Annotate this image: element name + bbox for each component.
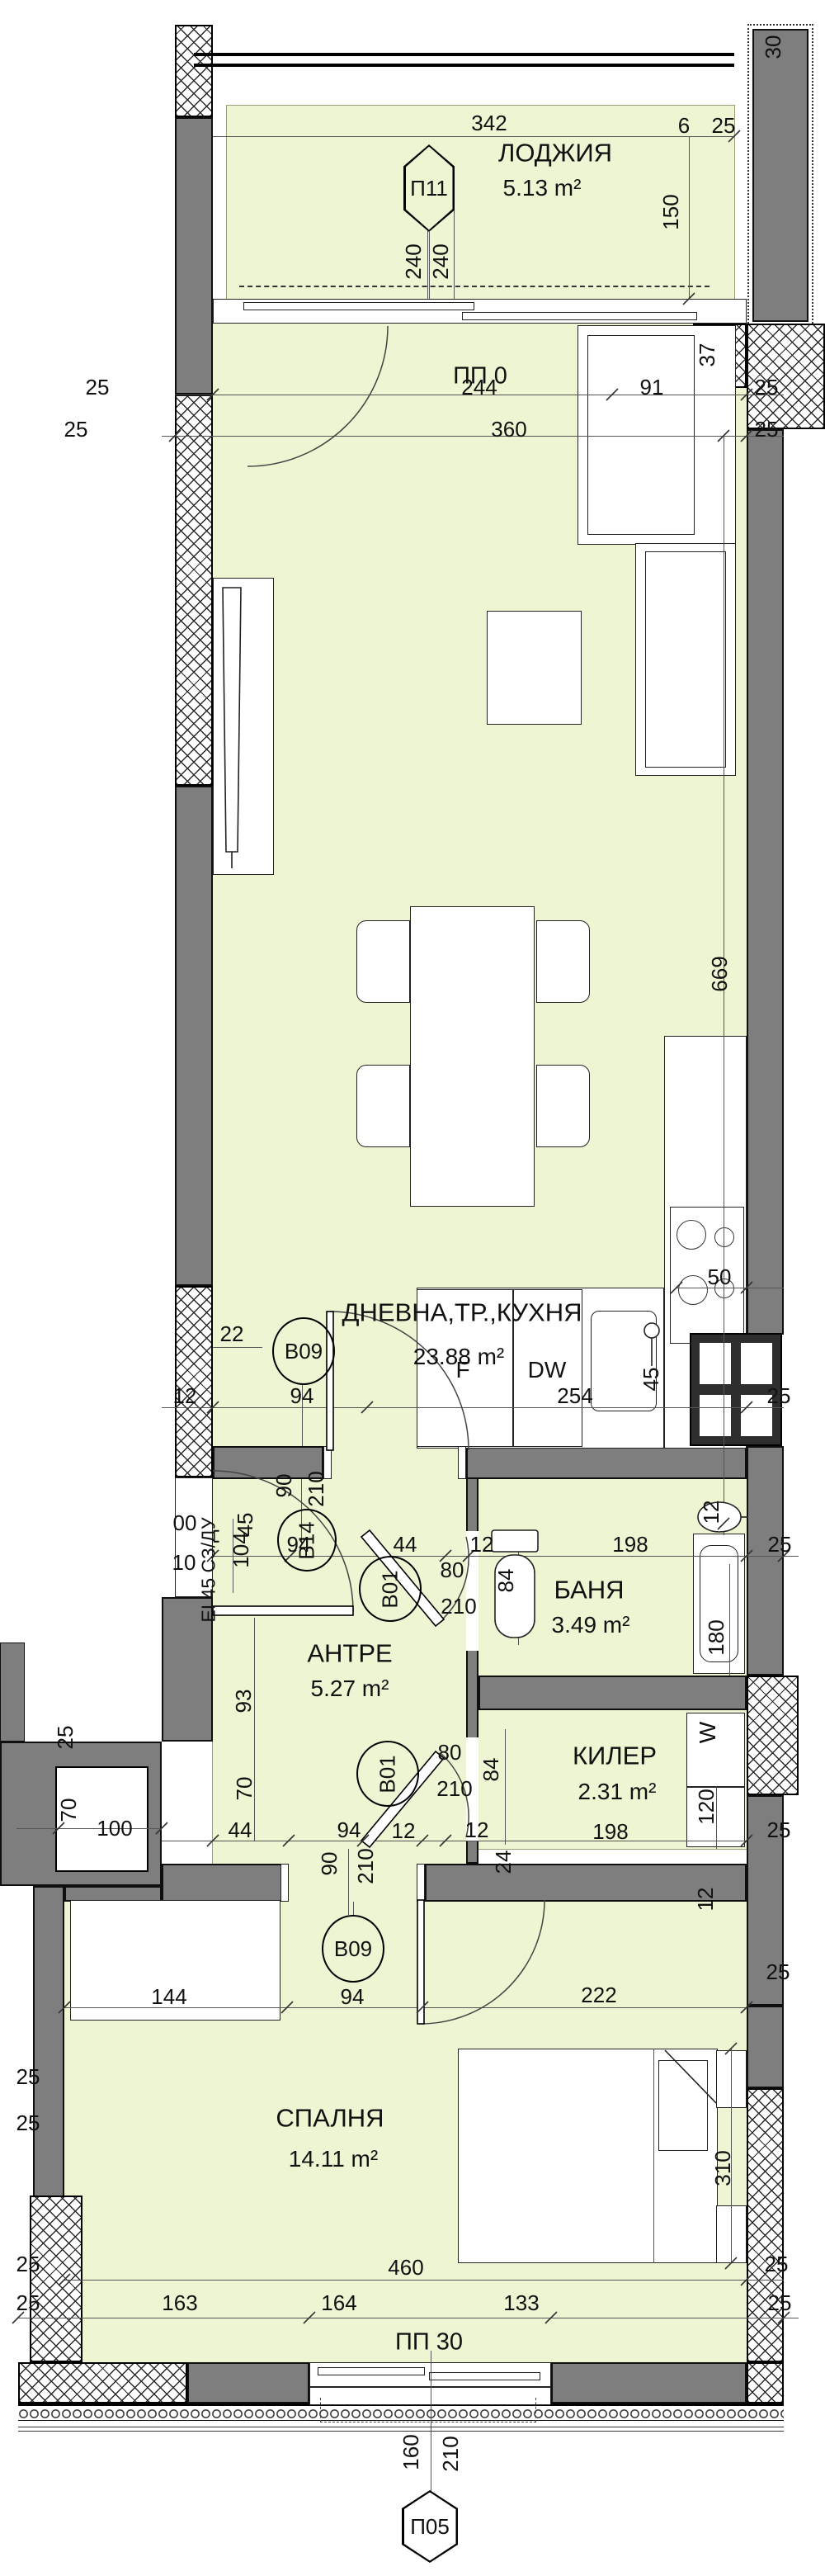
dim-label: 12 xyxy=(173,1385,197,1406)
dim-label: 144 xyxy=(151,1986,186,2007)
dim-label: 90 xyxy=(273,1474,295,1498)
door-arc xyxy=(421,1900,544,2024)
door-tag-В01: В01 xyxy=(359,1556,422,1622)
area-label: 3.49 m² xyxy=(552,1614,630,1637)
dim-label: 240 xyxy=(430,243,451,279)
dim-label: 210 xyxy=(440,2436,461,2471)
dim-label: 45 xyxy=(640,1368,662,1392)
dim-label: 210 xyxy=(305,1471,327,1506)
dim-label: 94 xyxy=(337,1819,361,1841)
dim-label: 44 xyxy=(229,1819,252,1841)
dim-label: 25 xyxy=(16,2292,40,2314)
tag-text: В09 xyxy=(285,1339,323,1364)
dim-label: 210 xyxy=(355,1848,376,1884)
dim-label: 25 xyxy=(54,1726,76,1750)
dim-label: 24 xyxy=(493,1850,514,1874)
area-label: 5.13 m² xyxy=(503,177,582,200)
door-tag-В14: В14 xyxy=(277,1509,337,1572)
dim-label: 84 xyxy=(480,1758,502,1782)
tv xyxy=(223,588,241,852)
dim-label: 94 xyxy=(290,1385,314,1406)
appl-label: F xyxy=(455,1359,469,1382)
tick xyxy=(12,130,790,2323)
tag-text: В14 xyxy=(294,1521,319,1559)
dim-label: 164 xyxy=(321,2292,356,2314)
dim-label: 25 xyxy=(755,376,779,398)
dim-label: 25 xyxy=(767,1385,791,1406)
door-arc xyxy=(330,1312,469,1450)
door-leaf xyxy=(213,1606,353,1615)
dim-label: 84 xyxy=(495,1569,516,1593)
dim-label: 25 xyxy=(16,2112,40,2134)
dim-label: 25 xyxy=(768,2292,792,2314)
dim-label: 360 xyxy=(491,418,526,440)
dim-label: 30 xyxy=(762,35,784,59)
dim-label: 210 xyxy=(436,1778,472,1799)
area-label: 14.11 m² xyxy=(289,2148,378,2171)
door-tag-В01: В01 xyxy=(356,1741,419,1807)
dim-label: 12 xyxy=(392,1820,416,1841)
dim-label: 180 xyxy=(705,1619,727,1655)
dim-label: 25 xyxy=(766,1961,790,1983)
dim-label: 12 xyxy=(695,1888,716,1912)
area-label: 5.27 m² xyxy=(311,1677,389,1700)
dim-label: 50 xyxy=(708,1266,732,1288)
dim-label: 12 xyxy=(470,1534,494,1555)
dim-label: 120 xyxy=(695,1789,717,1824)
dim-label: 150 xyxy=(660,194,681,229)
room-label: АНТРЕ xyxy=(307,1641,392,1666)
appl-label: DW xyxy=(528,1359,567,1382)
dim-label: 222 xyxy=(581,1984,616,2006)
dim-label: 100 xyxy=(97,1817,132,1839)
faucet xyxy=(644,1323,659,1338)
room-label: ЛОДЖИЯ xyxy=(498,140,612,166)
hexagon-tag-П11: П11 xyxy=(403,144,455,232)
dim-label: 70 xyxy=(233,1777,255,1801)
toilet-tank xyxy=(492,1530,538,1552)
dim-label: 91 xyxy=(640,376,664,398)
door-tag-В09: В09 xyxy=(322,1915,384,1983)
dim-label: 12 xyxy=(465,1819,489,1841)
tag-text: П05 xyxy=(410,2514,450,2540)
area-label: 2.31 m² xyxy=(578,1780,657,1803)
dim-label: 25 xyxy=(767,1819,791,1841)
dim-label: 80 xyxy=(441,1559,464,1581)
plan-symbols xyxy=(0,0,825,2576)
dim-label: 37 xyxy=(696,343,718,367)
bed-fold xyxy=(665,2050,716,2103)
tag-text: В09 xyxy=(334,1936,372,1962)
room-label: СПАЛНЯ xyxy=(276,2106,384,2131)
dim-label: EI 45 СЗ/ДУ xyxy=(200,1517,219,1622)
door-leaf xyxy=(417,1900,424,2024)
dim-label: 460 xyxy=(388,2257,423,2278)
dim-label: 133 xyxy=(503,2292,539,2314)
dim-label: 94 xyxy=(341,1986,365,2007)
tag-text: В01 xyxy=(375,1755,400,1793)
dim-label: 163 xyxy=(162,2292,197,2314)
dim-label: 244 xyxy=(461,376,497,398)
dim-label: 104 xyxy=(230,1532,252,1567)
tag-label: ПП 30 xyxy=(395,2331,463,2355)
dim-label: 25 xyxy=(712,115,736,136)
toilet-bowl xyxy=(495,1555,535,1638)
dim-label: 198 xyxy=(592,1821,628,1842)
dim-label: 254 xyxy=(557,1385,592,1406)
hexagon-tag-П05: П05 xyxy=(402,2490,458,2563)
room-label: КИЛЕР xyxy=(573,1743,657,1769)
tag-text: П11 xyxy=(410,176,448,201)
dim-label: 10 xyxy=(172,1552,196,1573)
dim-ticks xyxy=(12,130,790,2323)
dim-label: 44 xyxy=(394,1534,417,1555)
dim-label: 198 xyxy=(612,1534,648,1555)
room-label: БАНЯ xyxy=(554,1577,624,1603)
dim-label: 12 xyxy=(700,1501,722,1524)
appl-label: W xyxy=(696,1722,719,1743)
dim-label: 25 xyxy=(768,1534,792,1555)
dim-label: 70 xyxy=(58,1798,79,1822)
dim-label: 210 xyxy=(441,1595,476,1617)
dim-label: 25 xyxy=(16,2066,40,2087)
dim-label: 25 xyxy=(16,2253,40,2275)
dim-label: 160 xyxy=(400,2434,422,2470)
dim-label: 25 xyxy=(86,376,110,398)
dim-label: 00 xyxy=(173,1512,197,1534)
door-leaves xyxy=(213,1312,444,2024)
floor-plan: 30342625ЛОДЖИЯ5.13 m²150240240ПП 0372524… xyxy=(0,0,825,2576)
room-label: ДНЕВНА,ТР.,КУХНЯ xyxy=(342,1300,582,1326)
tag-text: В01 xyxy=(377,1570,403,1608)
dim-label: 310 xyxy=(712,2150,733,2186)
dim-label: 22 xyxy=(220,1323,244,1345)
dim-label: 90 xyxy=(318,1852,340,1876)
door-tag-В09: В09 xyxy=(272,1317,335,1385)
dim-label: 25 xyxy=(765,2253,789,2275)
dim-label: 80 xyxy=(438,1742,462,1763)
dim-label: 25 xyxy=(64,418,88,440)
door-arc xyxy=(247,326,388,466)
dim-label: 6 xyxy=(678,115,690,136)
dim-label: 669 xyxy=(709,956,730,991)
dim-label: 342 xyxy=(471,112,507,134)
dim-label: 25 xyxy=(755,418,779,440)
dim-label: 240 xyxy=(403,243,424,279)
dim-label: 93 xyxy=(233,1690,254,1713)
